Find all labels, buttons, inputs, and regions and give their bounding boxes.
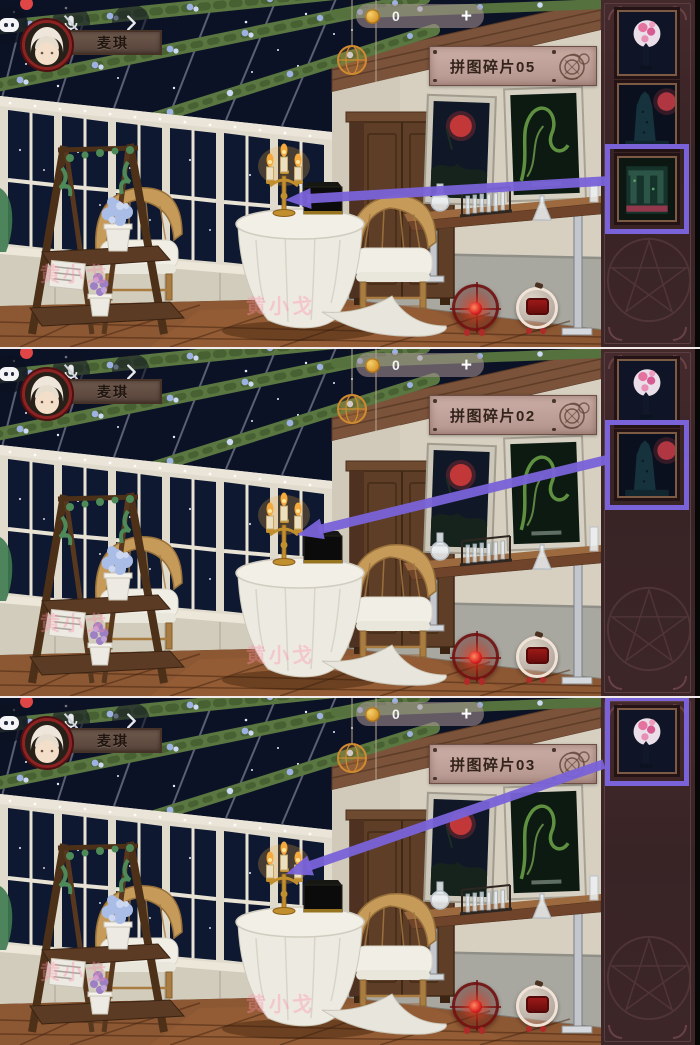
pentagram-decoration — [603, 231, 695, 329]
banner-pin-dot — [552, 748, 556, 752]
puzzle-piece-banner: 拼图碎片03 — [429, 744, 597, 784]
game-screenshot-panel: 麦琪 0 + 拼图碎片03 — [0, 698, 700, 1045]
corner-flourish — [673, 676, 687, 690]
currency-value: 0 — [392, 357, 400, 373]
watermark: 黄小戈 — [40, 956, 109, 985]
message-button[interactable] — [516, 287, 558, 329]
banner-pin-dot — [433, 399, 437, 403]
puzzle-piece-label: 拼图碎片05 — [430, 56, 536, 77]
currency-bar[interactable]: 0 + — [356, 353, 484, 377]
banner-pin-dot — [433, 50, 437, 54]
fragment-image — [619, 85, 675, 147]
wall-picture-green-vines[interactable] — [504, 436, 586, 551]
player-name: 麦琪 — [97, 382, 129, 402]
game-screenshot-panel: 麦琪 0 + 拼图碎片02 — [0, 349, 700, 696]
walkthrough-image: 麦琪 0 + 拼图碎片05 — [0, 0, 700, 1045]
pentagram-decoration — [603, 929, 695, 1027]
puzzle-piece-label: 拼图碎片02 — [430, 405, 536, 426]
fragment-image — [619, 710, 675, 772]
ornament-emblem-icon — [556, 398, 592, 434]
player-name: 麦琪 — [97, 731, 129, 751]
watermark: 黄小戈 — [246, 639, 315, 668]
puzzle-piece-label: 拼图碎片03 — [430, 754, 536, 775]
corner-flourish — [673, 1025, 687, 1039]
banner-pin-dot — [433, 79, 437, 83]
screen-edge — [695, 0, 700, 347]
currency-value: 0 — [392, 8, 400, 24]
dark-tower-art — [619, 85, 675, 147]
glow-dot — [469, 651, 482, 664]
add-currency-button[interactable]: + — [461, 7, 472, 26]
player-name-banner: 麦琪 — [64, 728, 162, 753]
player-avatar[interactable] — [22, 20, 72, 70]
add-currency-button[interactable]: + — [461, 356, 472, 375]
add-currency-button[interactable]: + — [461, 705, 472, 724]
avatar-face — [25, 372, 69, 416]
watermark: 黄小戈 — [40, 607, 109, 636]
item-slot-pink-moon-fragment[interactable] — [617, 708, 677, 774]
ornament-emblem-icon — [556, 49, 592, 85]
item-slot-dark-tower-fragment[interactable] — [617, 432, 677, 498]
fragment-image — [619, 158, 675, 220]
game-screenshot-panel: 麦琪 0 + 拼图碎片05 — [0, 0, 700, 347]
item-slot-pink-moon-fragment[interactable] — [617, 359, 677, 425]
inventory-slots — [617, 359, 677, 498]
pink-moon-art — [619, 361, 675, 423]
hint-target-button[interactable] — [452, 982, 499, 1029]
banner-pin-dot — [433, 777, 437, 781]
pink-moon-art — [619, 710, 675, 772]
player-name-banner: 麦琪 — [64, 379, 162, 404]
message-button[interactable] — [516, 636, 558, 678]
banner-pin-dot — [552, 428, 556, 432]
currency-bar[interactable]: 0 + — [356, 4, 484, 28]
hint-target-button[interactable] — [452, 633, 499, 680]
banner-pin-dot — [433, 428, 437, 432]
banner-pin-dot — [433, 748, 437, 752]
message-button[interactable] — [516, 985, 558, 1027]
chat-bubble-icon — [0, 367, 19, 381]
banner-pin-dot — [552, 777, 556, 781]
chat-bubble-icon — [0, 18, 19, 32]
watermark: 黄小戈 — [246, 988, 315, 1017]
fragment-image — [619, 361, 675, 423]
puzzle-piece-banner: 拼图碎片05 — [429, 46, 597, 86]
pentagram-decoration — [603, 580, 695, 678]
item-slot-green-ruins-fragment[interactable] — [617, 156, 677, 222]
currency-value: 0 — [392, 706, 400, 722]
wall-picture-green-vines[interactable] — [504, 87, 586, 202]
gold-coin-icon — [365, 9, 380, 24]
puzzle-piece-banner: 拼图碎片02 — [429, 395, 597, 435]
fragment-image — [619, 434, 675, 496]
screen-edge — [695, 349, 700, 696]
ornament-emblem-icon — [556, 747, 592, 783]
player-name: 麦琪 — [97, 33, 129, 53]
green-ruins-art — [619, 158, 675, 220]
inventory-sidebar — [601, 0, 700, 347]
gold-coin-icon — [365, 707, 380, 722]
dark-tower-art — [619, 434, 675, 496]
corner-flourish — [608, 327, 622, 341]
item-slot-dark-tower-fragment[interactable] — [617, 83, 677, 149]
black-box[interactable] — [304, 182, 342, 215]
watermark: 黄小戈 — [246, 290, 315, 319]
black-box[interactable] — [304, 880, 342, 913]
banner-pin-dot — [552, 79, 556, 83]
corner-flourish — [673, 327, 687, 341]
inventory-slots — [617, 708, 677, 774]
banner-pin-dot — [552, 399, 556, 403]
inventory-slots — [617, 10, 677, 222]
avatar-face — [25, 23, 69, 67]
fragment-image — [619, 12, 675, 74]
screen-edge — [695, 698, 700, 1045]
inventory-sidebar — [601, 698, 700, 1045]
message-bubble — [526, 298, 549, 315]
banner-pin-dot — [552, 50, 556, 54]
currency-bar[interactable]: 0 + — [356, 702, 484, 726]
message-bubble — [526, 647, 549, 664]
inventory-sidebar — [601, 349, 700, 696]
avatar-face — [25, 721, 69, 765]
chat-bubble-icon — [0, 716, 19, 730]
message-bubble — [526, 996, 549, 1013]
pink-moon-art — [619, 12, 675, 74]
corner-flourish — [608, 676, 622, 690]
glow-dot — [469, 1000, 482, 1013]
player-avatar[interactable] — [22, 369, 72, 419]
gold-coin-icon — [365, 358, 380, 373]
glow-dot — [469, 302, 482, 315]
item-slot-pink-moon-fragment[interactable] — [617, 10, 677, 76]
player-avatar[interactable] — [22, 718, 72, 768]
wall-picture-green-vines[interactable] — [504, 785, 586, 900]
watermark: 黄小戈 — [40, 258, 109, 287]
black-box[interactable] — [304, 531, 342, 564]
corner-flourish — [608, 1025, 622, 1039]
hint-target-button[interactable] — [452, 284, 499, 331]
player-name-banner: 麦琪 — [64, 30, 162, 55]
